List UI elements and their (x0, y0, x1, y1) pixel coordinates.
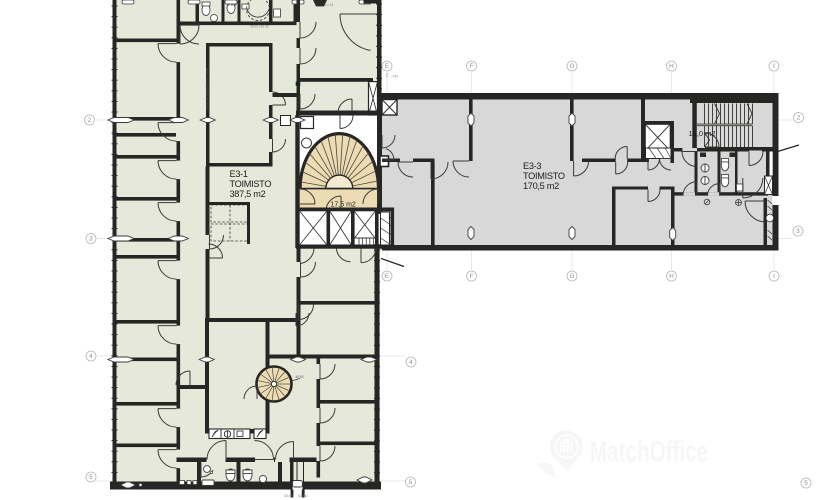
svg-text:15,0 m2: 15,0 m2 (689, 129, 716, 138)
svg-text:5: 5 (409, 479, 413, 486)
svg-text:LASIVÄLISEINÄ+OVI 2 KPL: LASIVÄLISEINÄ+OVI 2 KPL (206, 67, 210, 110)
svg-text:H: H (669, 273, 673, 280)
svg-text:TOIMISTO: TOIMISTO (523, 171, 565, 181)
svg-text:H: H (669, 63, 673, 70)
svg-text:387,5 m2: 387,5 m2 (230, 189, 266, 199)
svg-text:I: I (773, 63, 775, 70)
svg-text:63 60: 63 60 (299, 494, 308, 498)
svg-text:170,5 m2: 170,5 m2 (523, 181, 559, 191)
svg-text:F: F (470, 273, 474, 280)
svg-text:G: G (570, 273, 575, 280)
svg-text:3: 3 (89, 236, 93, 243)
svg-text:MatchOffice: MatchOffice (590, 436, 708, 469)
svg-text:2: 2 (88, 117, 92, 124)
svg-text:↓P10: ↓P10 (391, 75, 398, 79)
svg-text:5: 5 (804, 480, 808, 487)
svg-text:E: E (385, 273, 389, 280)
svg-text:05 09 210 05: 05 09 210 05 (250, 25, 269, 29)
svg-text:40 60: 40 60 (296, 375, 304, 379)
svg-text:E3-3: E3-3 (523, 161, 541, 171)
svg-text:TOIMISTO: TOIMISTO (230, 179, 272, 189)
svg-text:E3-1: E3-1 (230, 169, 248, 179)
svg-text:E: E (386, 73, 389, 78)
svg-text:F: F (470, 63, 474, 70)
svg-text:E: E (385, 63, 389, 70)
svg-text:4: 4 (89, 353, 93, 360)
svg-text:2: 2 (797, 115, 801, 122)
svg-text:3: 3 (796, 228, 800, 235)
svg-text:9 x 21: 9 x 21 (325, 3, 334, 7)
svg-text:4: 4 (409, 359, 413, 366)
svg-text:I: I (773, 273, 775, 280)
svg-text:63 60: 63 60 (285, 494, 294, 498)
svg-text:17,5 m2: 17,5 m2 (331, 202, 356, 209)
svg-text:5: 5 (89, 474, 93, 481)
svg-text:G: G (570, 63, 575, 70)
